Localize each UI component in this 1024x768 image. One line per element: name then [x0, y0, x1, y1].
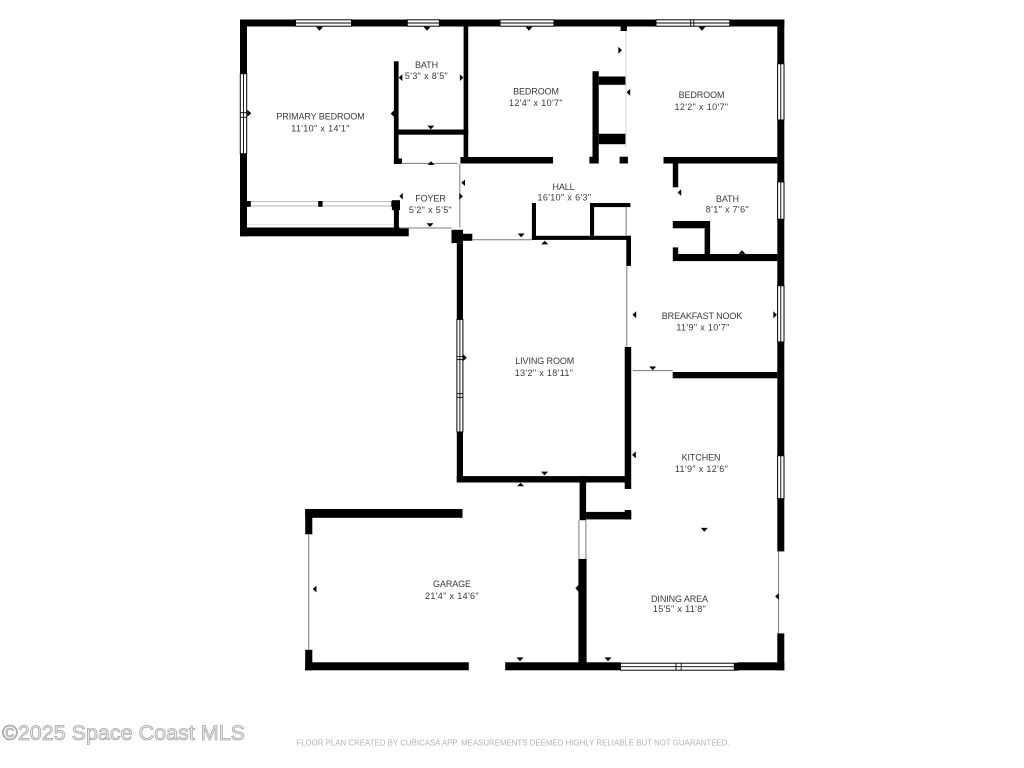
svg-text:5'3" x 8'5": 5'3" x 8'5"	[405, 71, 448, 81]
svg-text:LIVING ROOM: LIVING ROOM	[515, 356, 574, 366]
svg-text:KITCHEN: KITCHEN	[682, 452, 721, 462]
svg-text:GARAGE: GARAGE	[433, 579, 471, 589]
svg-text:BATH: BATH	[415, 60, 438, 70]
svg-text:11'9" x 12'6": 11'9" x 12'6"	[675, 464, 728, 474]
svg-text:16'10" x 6'3": 16'10" x 6'3"	[538, 192, 592, 202]
svg-text:21'4" x 14'6": 21'4" x 14'6"	[425, 591, 479, 601]
svg-text:BEDROOM: BEDROOM	[513, 86, 559, 96]
svg-text:FOYER: FOYER	[415, 193, 446, 203]
svg-text:8'1" x 7'6": 8'1" x 7'6"	[706, 205, 749, 215]
svg-text:BATH: BATH	[716, 194, 739, 204]
svg-text:PRIMARY BEDROOM: PRIMARY BEDROOM	[276, 112, 364, 122]
svg-text:13'2" x 18'11": 13'2" x 18'11"	[515, 368, 574, 378]
svg-text:DINING AREA: DINING AREA	[651, 594, 708, 604]
svg-text:©2025 Space Coast MLS: ©2025 Space Coast MLS	[2, 721, 245, 745]
svg-text:BEDROOM: BEDROOM	[679, 90, 725, 100]
svg-text:11'10" x 14'1": 11'10" x 14'1"	[291, 123, 350, 133]
svg-text:12'2" x 10'7": 12'2" x 10'7"	[675, 102, 729, 112]
svg-text:5'2" x 5'5": 5'2" x 5'5"	[409, 205, 452, 215]
svg-text:11'9" x 10'7": 11'9" x 10'7"	[676, 323, 729, 333]
svg-text:FLOOR PLAN CREATED BY CUBICASA: FLOOR PLAN CREATED BY CUBICASA APP. MEAS…	[296, 739, 729, 748]
svg-text:15'5" x 11'8": 15'5" x 11'8"	[653, 604, 706, 614]
svg-text:HALL: HALL	[552, 182, 574, 192]
svg-text:BREAKFAST NOOK: BREAKFAST NOOK	[662, 311, 743, 321]
svg-text:12'4" x 10'7": 12'4" x 10'7"	[509, 98, 563, 108]
